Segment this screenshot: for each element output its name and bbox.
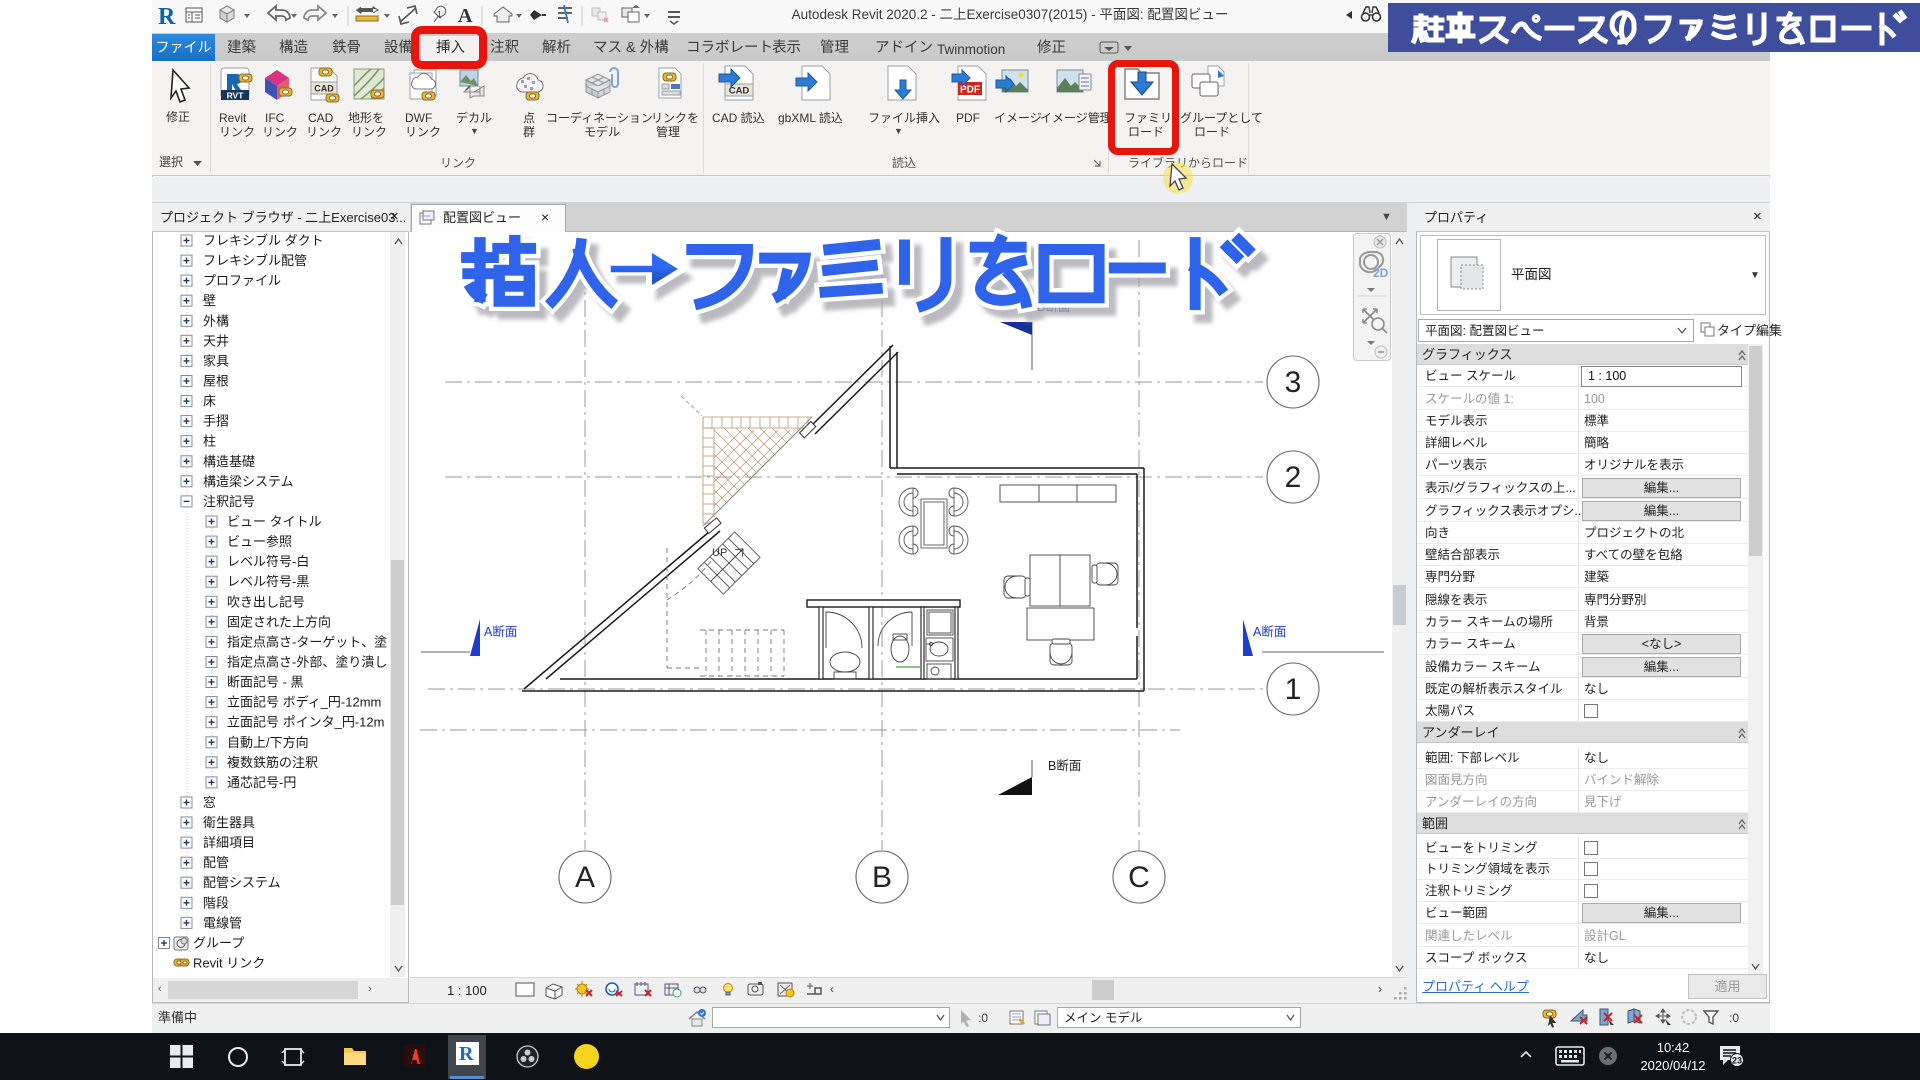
svg-text:屋根: 屋根 xyxy=(203,374,229,389)
svg-text:注釈記号: 注釈記号 xyxy=(203,494,255,509)
svg-text:フレキシブル ダクト: フレキシブル ダクト xyxy=(203,233,324,248)
svg-text:外構: 外構 xyxy=(203,313,229,328)
svg-text:手摺: 手摺 xyxy=(203,414,229,429)
svg-text:通芯記号-円: 通芯記号-円 xyxy=(227,775,296,790)
svg-text:プロファイル: プロファイル xyxy=(203,273,281,288)
svg-text:天井: 天井 xyxy=(203,333,229,348)
svg-text:レベル符号-白: レベル符号-白 xyxy=(227,554,309,569)
svg-text:3: 3 xyxy=(1285,366,1302,399)
svg-text:1: 1 xyxy=(1285,673,1302,706)
svg-text:家具: 家具 xyxy=(203,353,229,368)
svg-text:RVT: RVT xyxy=(227,91,245,101)
svg-text:ビュー タイトル: ビュー タイトル xyxy=(227,514,322,529)
svg-text:指定点高さ-ターゲット、塗り: 指定点高さ-ターゲット、塗り xyxy=(227,634,400,649)
svg-text:詳細項目: 詳細項目 xyxy=(203,835,255,850)
svg-text:フレキシブル配管: フレキシブル配管 xyxy=(203,253,307,268)
svg-text:1: 1 xyxy=(437,10,442,19)
svg-text:UP: UP xyxy=(712,547,727,559)
svg-text:構造梁システム: 構造梁システム xyxy=(203,474,294,489)
svg-text:固定された上方向: 固定された上方向 xyxy=(227,614,331,629)
svg-text:A断面: A断面 xyxy=(1253,624,1286,639)
svg-text:R: R xyxy=(158,4,176,30)
svg-text:立面記号 ポインタ_円-12m: 立面記号 ポインタ_円-12m xyxy=(227,715,384,730)
svg-text:2D: 2D xyxy=(1373,266,1389,280)
svg-text:電線管: 電線管 xyxy=(203,915,242,930)
svg-text:衛生器具: 衛生器具 xyxy=(203,815,255,830)
svg-text:Revit リンク: Revit リンク xyxy=(193,956,265,971)
svg-text:レベル符号-黒: レベル符号-黒 xyxy=(227,574,309,589)
svg-text:複数鉄筋の注釈: 複数鉄筋の注釈 xyxy=(227,755,318,770)
svg-text:吹き出し記号: 吹き出し記号 xyxy=(227,594,305,609)
svg-text:グループ: グループ xyxy=(193,936,244,951)
svg-text:窓: 窓 xyxy=(203,795,216,810)
svg-text:A: A xyxy=(458,5,473,27)
svg-text:A断面: A断面 xyxy=(484,624,517,639)
svg-text:PDF: PDF xyxy=(960,85,980,96)
svg-text:断面記号 - 黒: 断面記号 - 黒 xyxy=(227,675,304,690)
svg-text:構造基礎: 構造基礎 xyxy=(203,454,255,469)
svg-text:柱: 柱 xyxy=(203,434,216,449)
svg-text:立面記号 ボディ_円-12mm: 立面記号 ボディ_円-12mm xyxy=(227,695,381,710)
svg-text:自動上/下方向: 自動上/下方向 xyxy=(227,735,309,750)
svg-text:床: 床 xyxy=(203,394,216,409)
svg-text:B: B xyxy=(872,861,892,894)
svg-text:23: 23 xyxy=(1732,1056,1742,1066)
svg-text:A: A xyxy=(575,861,595,894)
svg-text:CAD: CAD xyxy=(314,84,334,94)
svg-text:2: 2 xyxy=(1285,461,1302,494)
svg-text:C: C xyxy=(1128,861,1150,894)
svg-text:壁: 壁 xyxy=(203,293,216,308)
svg-text:階段: 階段 xyxy=(203,895,229,910)
svg-text:B断面: B断面 xyxy=(1048,758,1081,773)
svg-text:指定点高さ-外部、塗り潰し: 指定点高さ-外部、塗り潰し xyxy=(227,655,387,670)
svg-text:CAD: CAD xyxy=(729,86,750,97)
svg-text:配管: 配管 xyxy=(203,855,229,870)
svg-text:ビュー参照: ビュー参照 xyxy=(227,534,292,549)
svg-text:配管システム: 配管システム xyxy=(203,875,281,890)
